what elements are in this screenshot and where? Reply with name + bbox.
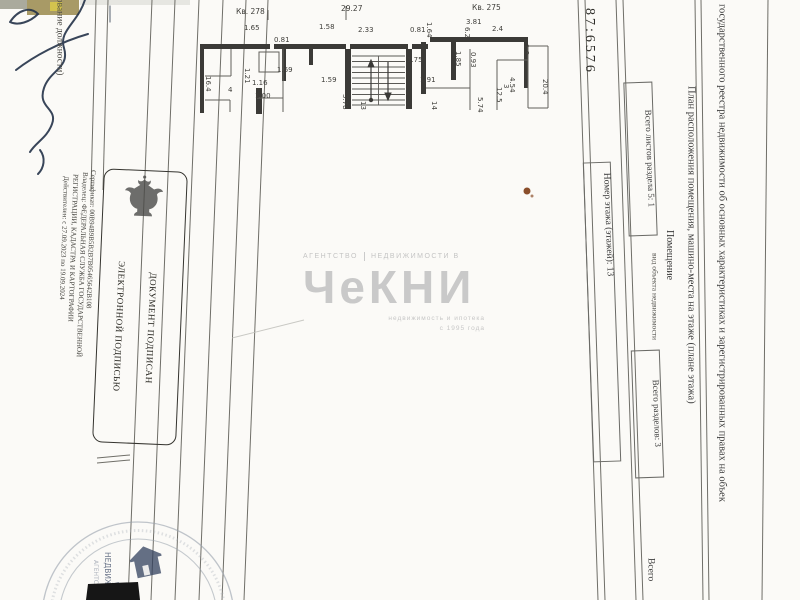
position-caption: (наименование должности) bbox=[54, 0, 64, 75]
floor-plan: Кв. 278 29.27 Кв. 275 1.65 0.81 1.69 1.1… bbox=[200, 3, 549, 114]
plan-dimension-label: 1.16 bbox=[252, 79, 268, 87]
apartment-label: Кв. 275 bbox=[472, 3, 501, 12]
cadastral-number-fragment: 87:6576 bbox=[582, 8, 596, 75]
plan-dimension-label: 5.74 bbox=[476, 97, 484, 113]
plan-dimension-label: 2.4 bbox=[492, 25, 504, 33]
plan-dimension-label: 2.33 bbox=[358, 26, 374, 34]
plan-dimension-label: 3.81 bbox=[466, 18, 482, 26]
plan-dimension-label: 1.91 bbox=[420, 76, 436, 84]
apartment-label: Кв. 278 bbox=[236, 7, 265, 16]
plan-dimension-label: 1.85 bbox=[454, 51, 462, 67]
room-number-label: 4 bbox=[228, 86, 233, 94]
plan-dimension-label: 1.64 bbox=[425, 22, 433, 38]
plan-dimension-label: 6.2 bbox=[463, 27, 471, 38]
plan-dimension-label: 3.78 bbox=[341, 94, 349, 110]
room-area-label: 12.5 bbox=[495, 87, 503, 103]
object-kind-caption: вид объекта недвижимости bbox=[651, 253, 659, 340]
coat-of-arms-icon bbox=[103, 173, 185, 222]
sections-total: Всего разделов: 3 bbox=[632, 351, 663, 478]
plan-dimension-label: 1.69 bbox=[277, 66, 293, 74]
stain-dot bbox=[524, 188, 534, 198]
scan-edge-artifact bbox=[0, 0, 28, 9]
crease-line bbox=[232, 320, 304, 338]
object-kind-value: Помещение bbox=[664, 230, 674, 280]
sections-total-box: Всего разделов: 3 bbox=[631, 350, 664, 479]
plan-dimension-label: 0.81 bbox=[274, 36, 290, 44]
plan-dimension-label: 0.93 bbox=[469, 52, 477, 68]
room-number-label: 13 bbox=[359, 101, 367, 110]
scanned-document-page: АГЕНТСТВО НЕДВИЖИМОСТИ В ЧеКНИ недвижимо… bbox=[0, 0, 800, 600]
sheets-in-section: Всего листов раздела 5: 1 bbox=[624, 83, 656, 236]
stair-treads bbox=[352, 56, 405, 105]
plan-dimension-label: 1.21 bbox=[243, 68, 251, 84]
plan-dimension-label: 29.27 bbox=[341, 4, 363, 13]
esign-stamp-box: ДОКУМЕНТ ПОДПИСАН ЭЛЕКТРОННОЙ ПОДПИСЬЮ bbox=[92, 168, 188, 445]
plan-dimension-label: 1.59 bbox=[321, 76, 337, 84]
esign-line1: ДОКУМЕНТ ПОДПИСАН bbox=[142, 225, 160, 430]
room-area-label: 20.4 bbox=[541, 79, 549, 95]
sheets-total-fragment: Всего bbox=[645, 558, 655, 581]
plan-dimension-label: 1.00 bbox=[255, 92, 271, 100]
register-title: государственного реестра недвижимости об… bbox=[716, 4, 727, 502]
plan-dimension-label: 0.81 bbox=[410, 26, 426, 34]
room-number-label: 14 bbox=[430, 101, 438, 110]
scan-edge-artifact bbox=[80, 0, 190, 5]
plan-dimension-label: 1.58 bbox=[319, 23, 335, 31]
plan-section-title: План расположения помещения, машино-мест… bbox=[685, 86, 696, 404]
scan-edge-dark-patch bbox=[86, 582, 140, 600]
plan-dimension-label: 4.54 bbox=[508, 77, 516, 93]
sheets-in-section-box: Всего листов раздела 5: 1 bbox=[623, 82, 657, 237]
plan-dimension-label: 1.8 bbox=[522, 44, 530, 55]
stair-arrow bbox=[368, 60, 391, 102]
plan-dimension-label: 1.65 bbox=[244, 24, 260, 32]
esign-line2: ЭЛЕКТРОННОЙ ПОДПИСЬЮ bbox=[110, 224, 128, 429]
room-area-label: 16.4 bbox=[204, 76, 212, 92]
plan-dimension-label: 1.75 bbox=[407, 56, 423, 64]
